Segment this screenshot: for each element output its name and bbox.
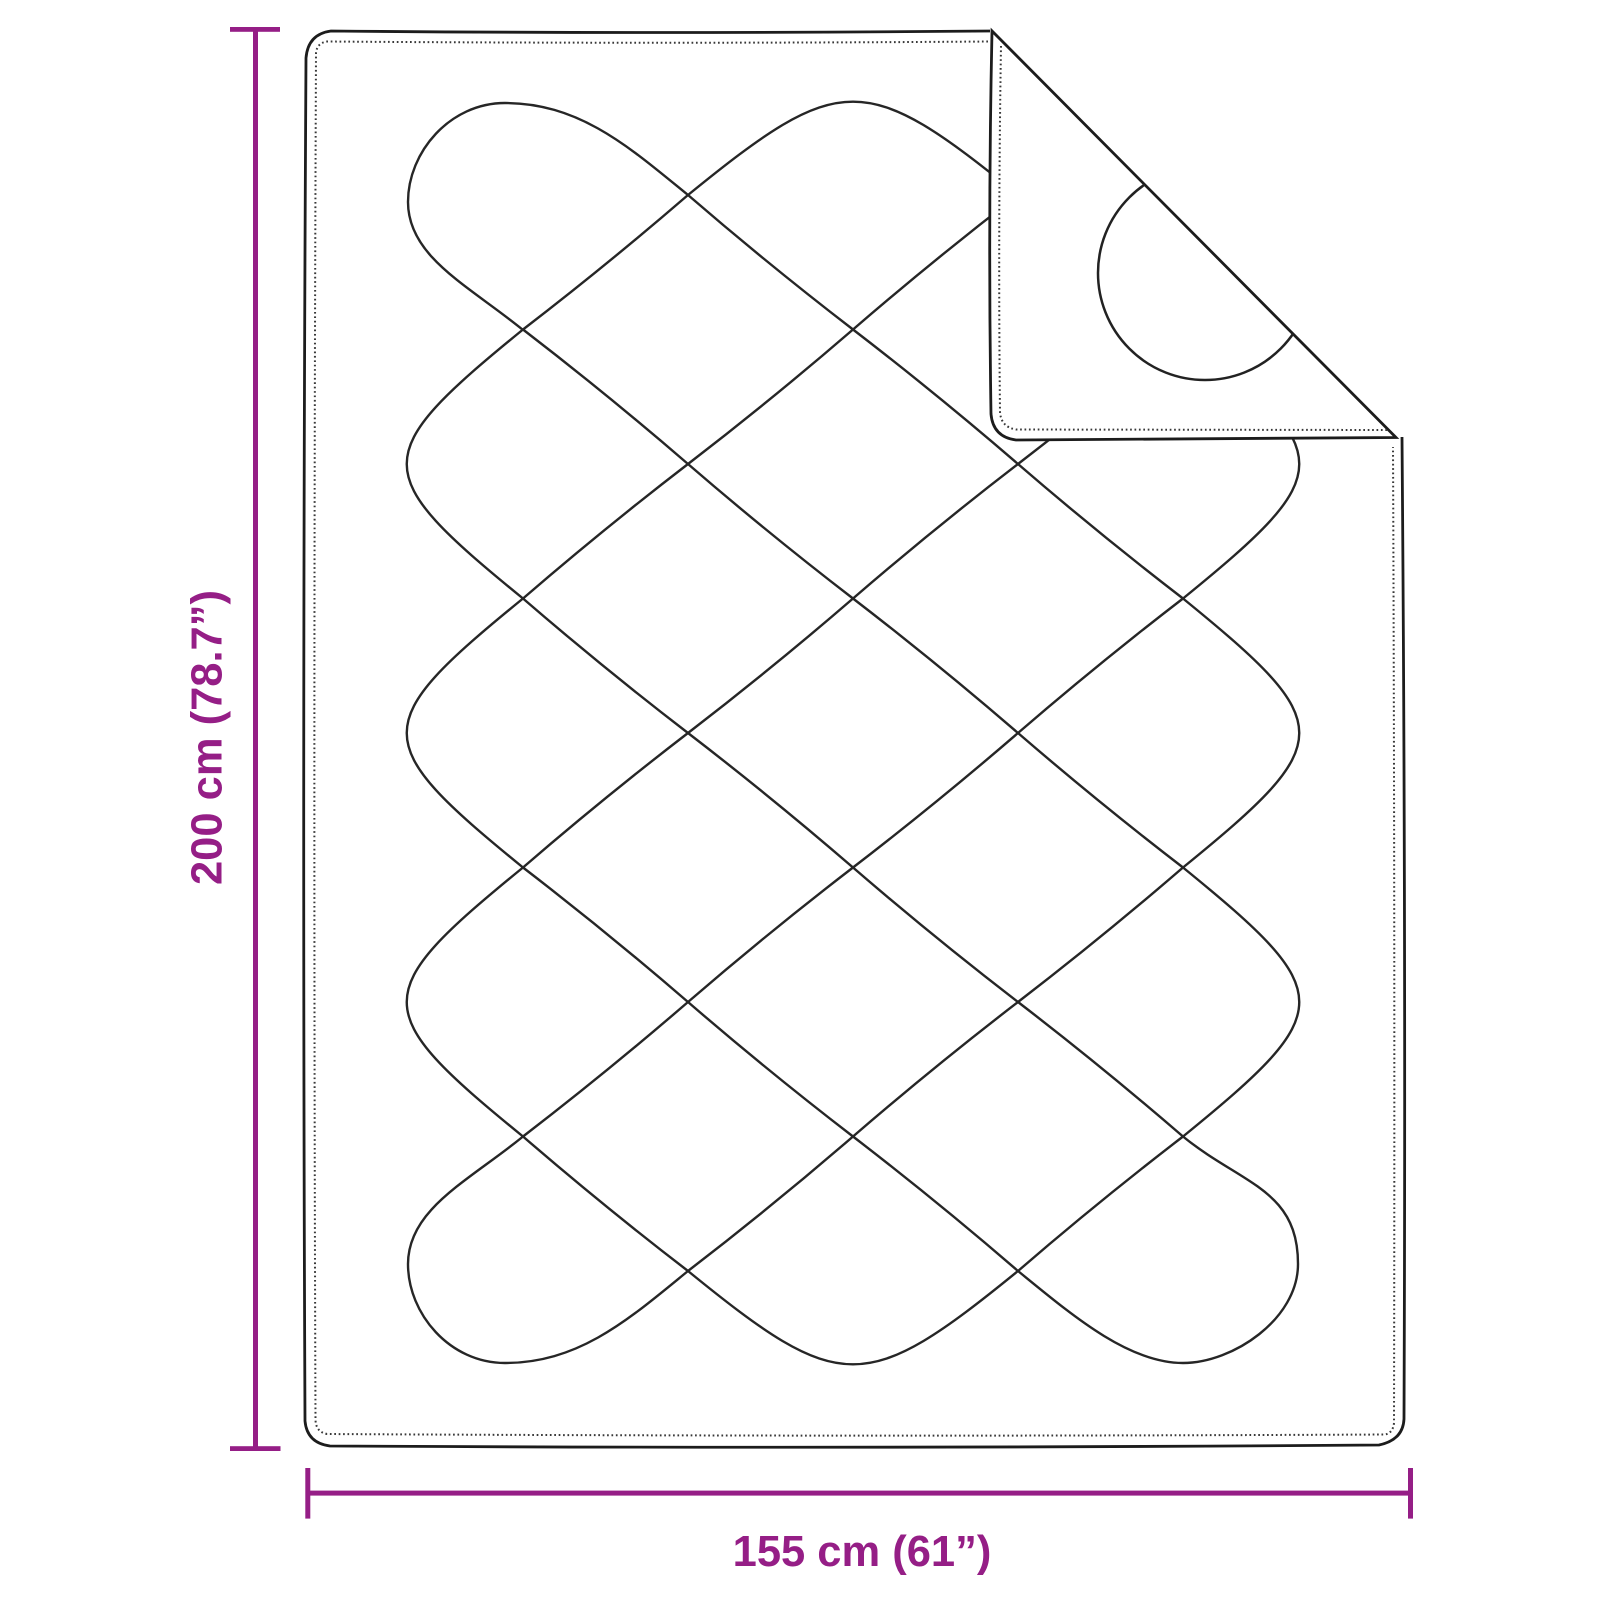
svg-text:200 cm (78.7”): 200 cm (78.7”)	[184, 590, 232, 885]
svg-text:155 cm (61”): 155 cm (61”)	[733, 1528, 992, 1576]
